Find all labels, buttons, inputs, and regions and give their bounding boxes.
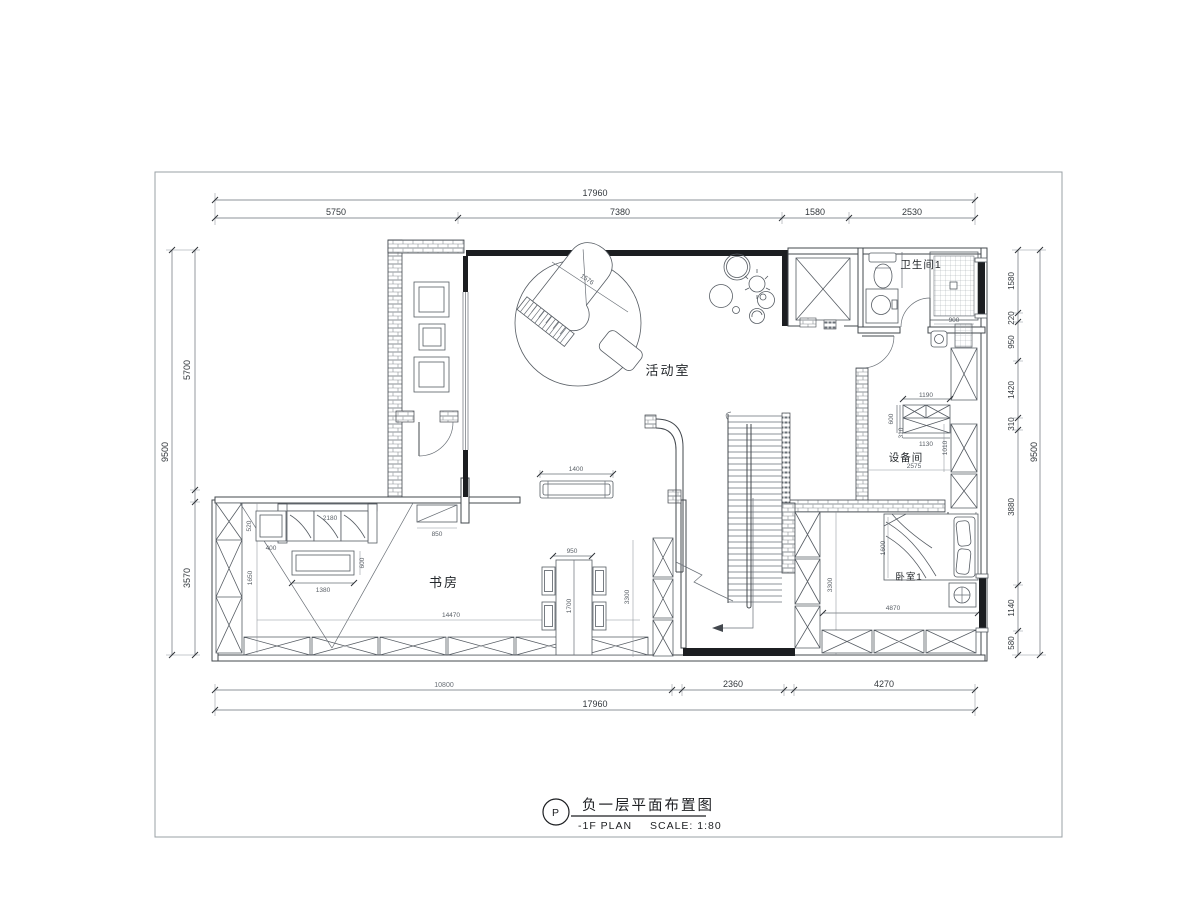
wall-study-top [215, 497, 520, 503]
dim-right-overall: 9500 [1029, 442, 1039, 462]
dim-table-w: 950 [567, 548, 578, 555]
room-label-bedroom: 卧室1 [895, 571, 922, 583]
dim-table-l: 1700 [566, 598, 573, 613]
dim-study-height: 1650 [247, 570, 254, 585]
scale-label: SCALE: 1:80 [650, 820, 722, 832]
room-label-bathroom: 卫生间1 [900, 258, 941, 271]
door-stub-right [440, 411, 458, 422]
dim-cabinet: 850 [432, 531, 443, 538]
dim-top-seg2: 7380 [610, 207, 630, 217]
dim-right-seg4: 1420 [1007, 381, 1016, 399]
dim-top-overall: 17960 [582, 188, 607, 198]
bed: 1600 [880, 514, 978, 580]
dim-left-seg2: 3570 [182, 568, 192, 588]
dim-top-seg4: 2530 [902, 207, 922, 217]
dim-side-table-d: 400 [266, 545, 277, 552]
dim-right-seg2: 220 [1007, 311, 1016, 325]
dim-right-seg6: 3880 [1007, 498, 1016, 516]
brick-wall-corridor-left [388, 240, 402, 502]
cabinet-column-dining [653, 538, 673, 656]
dim-right-seg5: 310 [1007, 417, 1016, 431]
fan-coil-unit [949, 583, 976, 607]
wardrobe-column [795, 512, 820, 648]
drawing-sheet: 17960 5750 7380 1580 2530 10800 2360 427… [0, 0, 1200, 910]
room-label-equipment: 设备间 [889, 451, 924, 464]
dim-top-seg3: 1580 [805, 207, 825, 217]
sink [866, 289, 898, 323]
dim-study-width: 14470 [442, 612, 460, 619]
dim-right-seg3: 950 [1007, 335, 1016, 349]
dim-equip-side: 1010 [942, 440, 949, 455]
floor-plan-canvas: 17960 5750 7380 1580 2530 10800 2360 427… [0, 0, 1200, 910]
dim-bottom-seg1: 10800 [434, 682, 454, 689]
cabinet-row-bedroom [822, 630, 976, 653]
wall-activity-top [466, 250, 782, 256]
dim-dining-wall: 3300 [624, 589, 631, 604]
dim-bottom-seg2: 2360 [723, 679, 743, 689]
room-label-study: 书房 [429, 575, 459, 590]
sofa: 2180 [278, 504, 377, 543]
dim-bed-width: 1600 [880, 540, 887, 555]
dim-right-seg7: 1140 [1007, 599, 1016, 617]
dim-side-table-w: 520 [246, 520, 253, 531]
brick-wall-corridor-top [388, 240, 464, 253]
window-bar-bedroom [979, 578, 986, 628]
dim-shower: 900 [949, 317, 960, 324]
dim-coffee-table-w: 1380 [316, 587, 331, 594]
dim-right-seg1: 1580 [1007, 272, 1016, 290]
wall-bath-bottom-a [858, 327, 900, 333]
wall-hall-elevator [858, 248, 863, 330]
pillow [956, 520, 972, 546]
dim-equip-top: 1190 [919, 392, 933, 399]
dim-bottom-seg3: 4270 [874, 679, 894, 689]
wall-bottom [215, 655, 985, 661]
cabinet-column-right [951, 348, 977, 508]
dim-top-seg1: 5750 [326, 207, 346, 217]
dim-equip-width: 2575 [907, 463, 922, 470]
plan-label: -1F PLAN [578, 820, 632, 832]
dim-equip-mid: 1130 [919, 441, 933, 448]
wall-stair-bottom [683, 648, 795, 656]
washbasin [931, 331, 947, 347]
brick-wall-bedroom-top [782, 500, 945, 512]
water-heater [955, 324, 972, 347]
room-label-activity: 活动室 [645, 363, 690, 378]
dim-equip-gap: 310 [898, 427, 905, 438]
brick-wall-stair-right [782, 503, 795, 573]
dim-equip-depth: 600 [888, 413, 895, 424]
dim-coffee-table-d: 600 [359, 557, 366, 568]
wall-activity-left-upper [463, 256, 468, 292]
door-stub-left [396, 411, 414, 422]
wall-activity-left-lower [463, 450, 468, 497]
plan-symbol: P [552, 807, 560, 819]
dim-bedroom-width: 4870 [886, 605, 901, 612]
dim-bench: 1400 [569, 466, 584, 473]
dim-bottom-overall: 17960 [582, 699, 607, 709]
dim-sofa: 2180 [323, 515, 338, 522]
wall-elevator-left [782, 250, 788, 326]
wall-stub-guard [645, 415, 656, 428]
plan-title: 负一层平面布置图 [582, 797, 714, 814]
wall-stair-right-upper [782, 413, 790, 503]
window-bar-bathroom [978, 262, 985, 314]
pillow [956, 548, 972, 574]
brick-wall-equipment-left [856, 368, 868, 505]
wall-stub-landing [668, 490, 681, 503]
dim-right-seg8: 580 [1007, 636, 1016, 650]
cabinet-column-study [216, 503, 242, 653]
dim-left-overall: 9500 [160, 442, 170, 462]
dim-bedroom-wall: 3300 [827, 577, 834, 592]
dim-left-seg1: 5700 [182, 360, 192, 380]
